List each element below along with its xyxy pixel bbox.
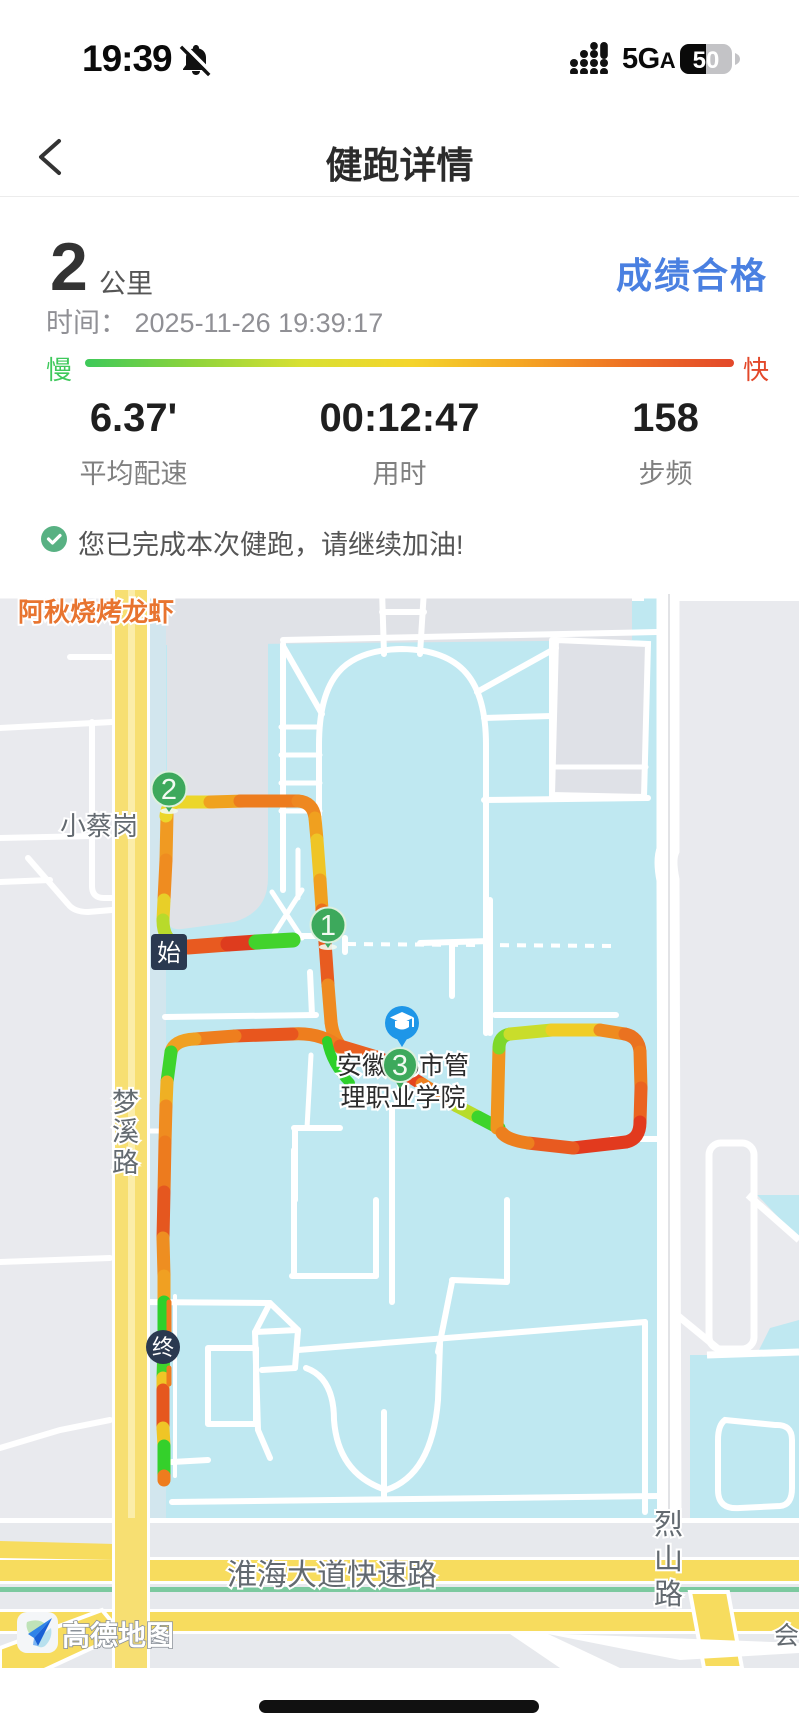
- svg-text:山: 山: [654, 1544, 683, 1576]
- svg-text:终: 终: [152, 1335, 174, 1360]
- svg-text:溪: 溪: [112, 1117, 139, 1147]
- svg-text:1: 1: [320, 910, 336, 942]
- svg-text:烈: 烈: [654, 1509, 683, 1541]
- svg-text:50: 50: [693, 47, 720, 74]
- svg-text:理职业学院: 理职业学院: [340, 1084, 465, 1112]
- svg-text:3: 3: [392, 1050, 408, 1082]
- svg-text:会: 会: [774, 1622, 799, 1650]
- svg-text:阿秋烧烤龙虾: 阿秋烧烤龙虾: [18, 597, 174, 627]
- svg-text:梦: 梦: [112, 1088, 139, 1118]
- svg-text:淮海大道快速路: 淮海大道快速路: [227, 1559, 437, 1592]
- svg-text:小蔡岗: 小蔡岗: [60, 811, 138, 841]
- svg-text:路: 路: [112, 1148, 139, 1178]
- svg-text:路: 路: [654, 1578, 683, 1611]
- svg-text:始: 始: [157, 940, 181, 967]
- svg-text:2: 2: [161, 774, 177, 806]
- svg-text:高德地图: 高德地图: [62, 1620, 174, 1651]
